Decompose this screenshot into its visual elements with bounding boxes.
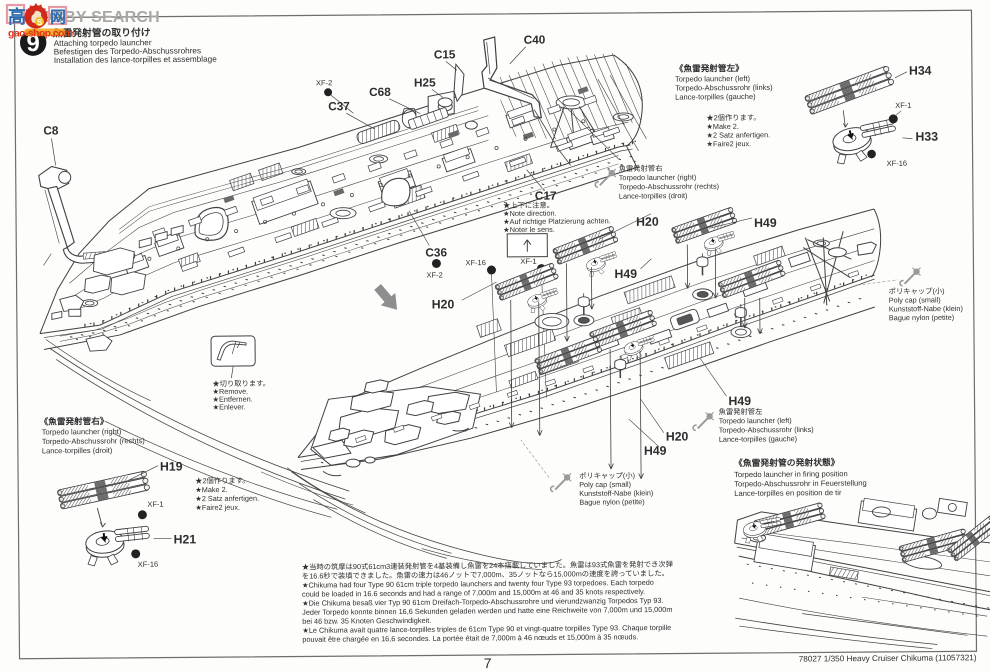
svg-text:H49: H49: [614, 267, 637, 281]
svg-text:Installation des lance-torpill: Installation des lance-torpilles et asse…: [54, 55, 217, 65]
svg-text:XF-16: XF-16: [887, 159, 908, 168]
svg-text:《魚雷発射管右》: 《魚雷発射管右》: [40, 415, 109, 427]
svg-text:H34: H34: [909, 64, 932, 78]
svg-text:H21: H21: [174, 532, 197, 546]
svg-text:C37: C37: [328, 99, 350, 113]
svg-text:Torpedo-Abschussrohr (links): Torpedo-Abschussrohr (links): [675, 83, 773, 93]
svg-text:★Enlever.: ★Enlever.: [213, 402, 246, 411]
svg-text:XF-1: XF-1: [520, 257, 536, 266]
svg-text:Lance-torpilles (droit): Lance-torpilles (droit): [42, 446, 113, 456]
svg-text:Torpedo launcher (right): Torpedo launcher (right): [42, 427, 122, 437]
svg-text:Torpedo-Abschussrohr in Feuers: Torpedo-Abschussrohr in Feuerstellung: [734, 478, 867, 488]
svg-text:Lance-torpilles (gauche): Lance-torpilles (gauche): [719, 434, 797, 444]
svg-text:HOBBY SEARCH: HOBBY SEARCH: [28, 9, 160, 26]
svg-text:XF-16: XF-16: [138, 560, 159, 569]
svg-text:★Make 2.: ★Make 2.: [195, 485, 228, 494]
svg-text:《魚雷発射管左》: 《魚雷発射管左》: [675, 62, 744, 74]
svg-text:魚雷発射管左: 魚雷発射管左: [719, 407, 763, 416]
svg-text:H25: H25: [414, 75, 436, 89]
svg-text:H49: H49: [644, 444, 667, 458]
svg-text:网: 网: [50, 9, 66, 27]
svg-text:★Faire2 jeux.: ★Faire2 jeux.: [195, 503, 240, 512]
svg-text:C36: C36: [425, 245, 447, 259]
svg-text:Jeder Torpedo konnte binnen 16: Jeder Torpedo konnte binnen 16,6 Sekunde…: [302, 605, 672, 617]
svg-text:★2 Satz anfertigen.: ★2 Satz anfertigen.: [195, 494, 259, 504]
svg-text:7: 7: [484, 655, 492, 671]
svg-text:高: 高: [8, 6, 26, 27]
svg-text:H33: H33: [915, 130, 938, 144]
svg-text:Lance-torpilles (gauche): Lance-torpilles (gauche): [675, 92, 756, 102]
svg-text:78027 1/350 Heavy Cruiser Chik: 78027 1/350 Heavy Cruiser Chikuma (11057…: [799, 653, 977, 663]
svg-text:XF-1: XF-1: [147, 500, 163, 509]
svg-text:Torpedo launcher (right): Torpedo launcher (right): [619, 173, 697, 183]
svg-text:H20: H20: [666, 429, 689, 443]
svg-text:《魚雷発射管の発射状態》: 《魚雷発射管の発射状態》: [734, 456, 840, 468]
svg-text:H19: H19: [160, 459, 183, 473]
svg-text:★2個作ります。: ★2個作ります。: [195, 476, 249, 485]
svg-text:XF-16: XF-16: [465, 258, 486, 267]
svg-text:H49: H49: [754, 216, 777, 230]
svg-text:Bague nylon (petite): Bague nylon (petite): [579, 497, 644, 507]
svg-text:XF-1: XF-1: [895, 101, 911, 110]
svg-text:★Noter le sens.: ★Noter le sens.: [503, 225, 555, 234]
svg-text:C8: C8: [43, 123, 59, 137]
svg-text:★Faire2 jeux.: ★Faire2 jeux.: [706, 139, 751, 148]
svg-text:XF-2: XF-2: [316, 78, 332, 87]
svg-text:Torpedo-Abschussrohr (links): Torpedo-Abschussrohr (links): [719, 425, 814, 435]
svg-text:Lance-torpilles (droit): Lance-torpilles (droit): [619, 191, 688, 201]
svg-text:C40: C40: [524, 33, 546, 47]
svg-text:pouvait être chargée en 16,6 s: pouvait être chargée en 16,6 secondes. L…: [302, 632, 638, 644]
svg-text:C15: C15: [434, 47, 456, 61]
svg-text:XF-2: XF-2: [426, 270, 442, 279]
svg-text:C68: C68: [369, 85, 391, 99]
svg-text:Torpedo-Abschussrohr (rechts): Torpedo-Abschussrohr (rechts): [42, 436, 146, 446]
svg-text:Torpedo-Abschussrohr (rechts): Torpedo-Abschussrohr (rechts): [619, 182, 719, 192]
svg-text:gao-shop.com: gao-shop.com: [8, 28, 73, 40]
svg-text:Bague nylon (petite): Bague nylon (petite): [889, 313, 954, 323]
svg-text:H20: H20: [636, 215, 659, 229]
svg-text:Torpedo launcher in firing pos: Torpedo launcher in firing position: [734, 469, 848, 479]
svg-text:Lance-torpilles en position de: Lance-torpilles en position de tir: [734, 488, 842, 498]
svg-text:魚雷発射管右: 魚雷発射管右: [619, 164, 663, 173]
svg-text:H20: H20: [432, 297, 455, 311]
svg-text:S: S: [37, 18, 43, 27]
svg-text:Torpedo launcher (left): Torpedo launcher (left): [719, 416, 792, 426]
